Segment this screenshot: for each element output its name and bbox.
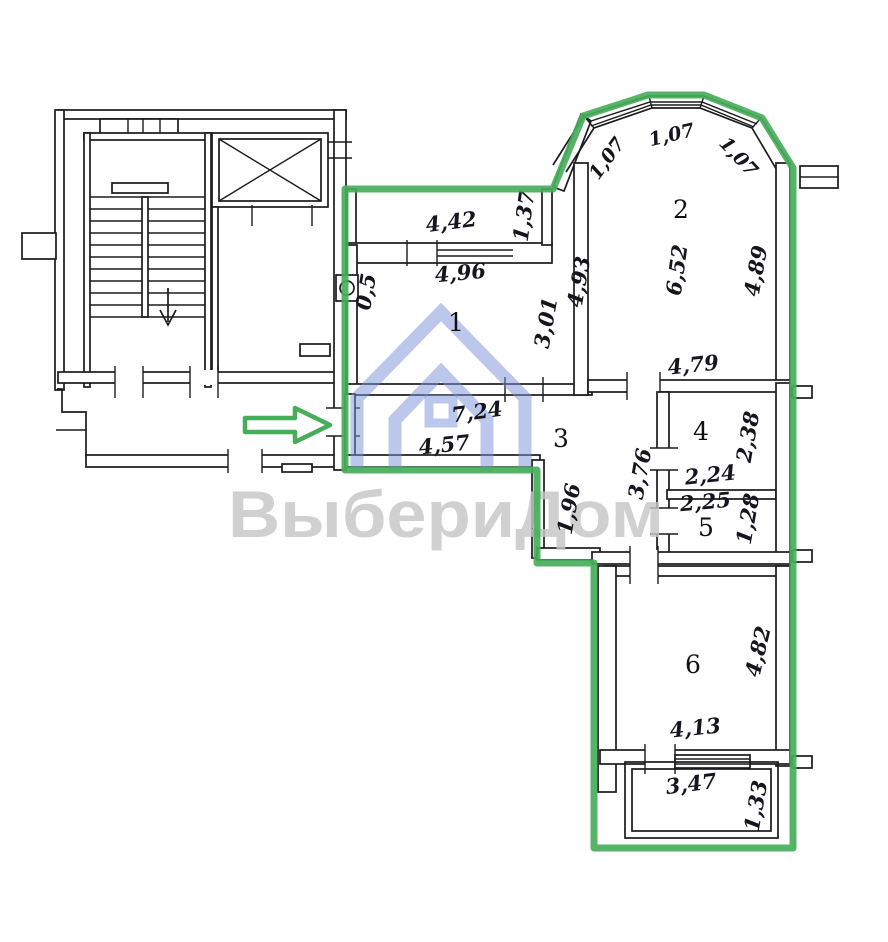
room6-number: 6	[685, 650, 701, 679]
dim-room5-width: 2,25	[678, 487, 732, 516]
room1-number: 1	[448, 308, 464, 337]
room3-number: 3	[553, 424, 569, 453]
room4-number: 4	[693, 417, 709, 446]
floor-plan-svg: ВыбериДом 1,07 1,07 1,07 4,42 1,37 4,96 …	[0, 0, 888, 942]
dim-room1-width: 4,96	[434, 258, 488, 287]
room5-number: 5	[698, 513, 714, 542]
stair-stringer	[142, 197, 148, 317]
room2-number: 2	[673, 195, 689, 224]
floor-plan: ВыбериДом 1,07 1,07 1,07 4,42 1,37 4,96 …	[0, 0, 888, 942]
watermark-text: ВыбериДом	[228, 477, 664, 551]
dim-room6-width: 4,13	[668, 712, 721, 742]
left-wall-notch	[22, 233, 56, 259]
